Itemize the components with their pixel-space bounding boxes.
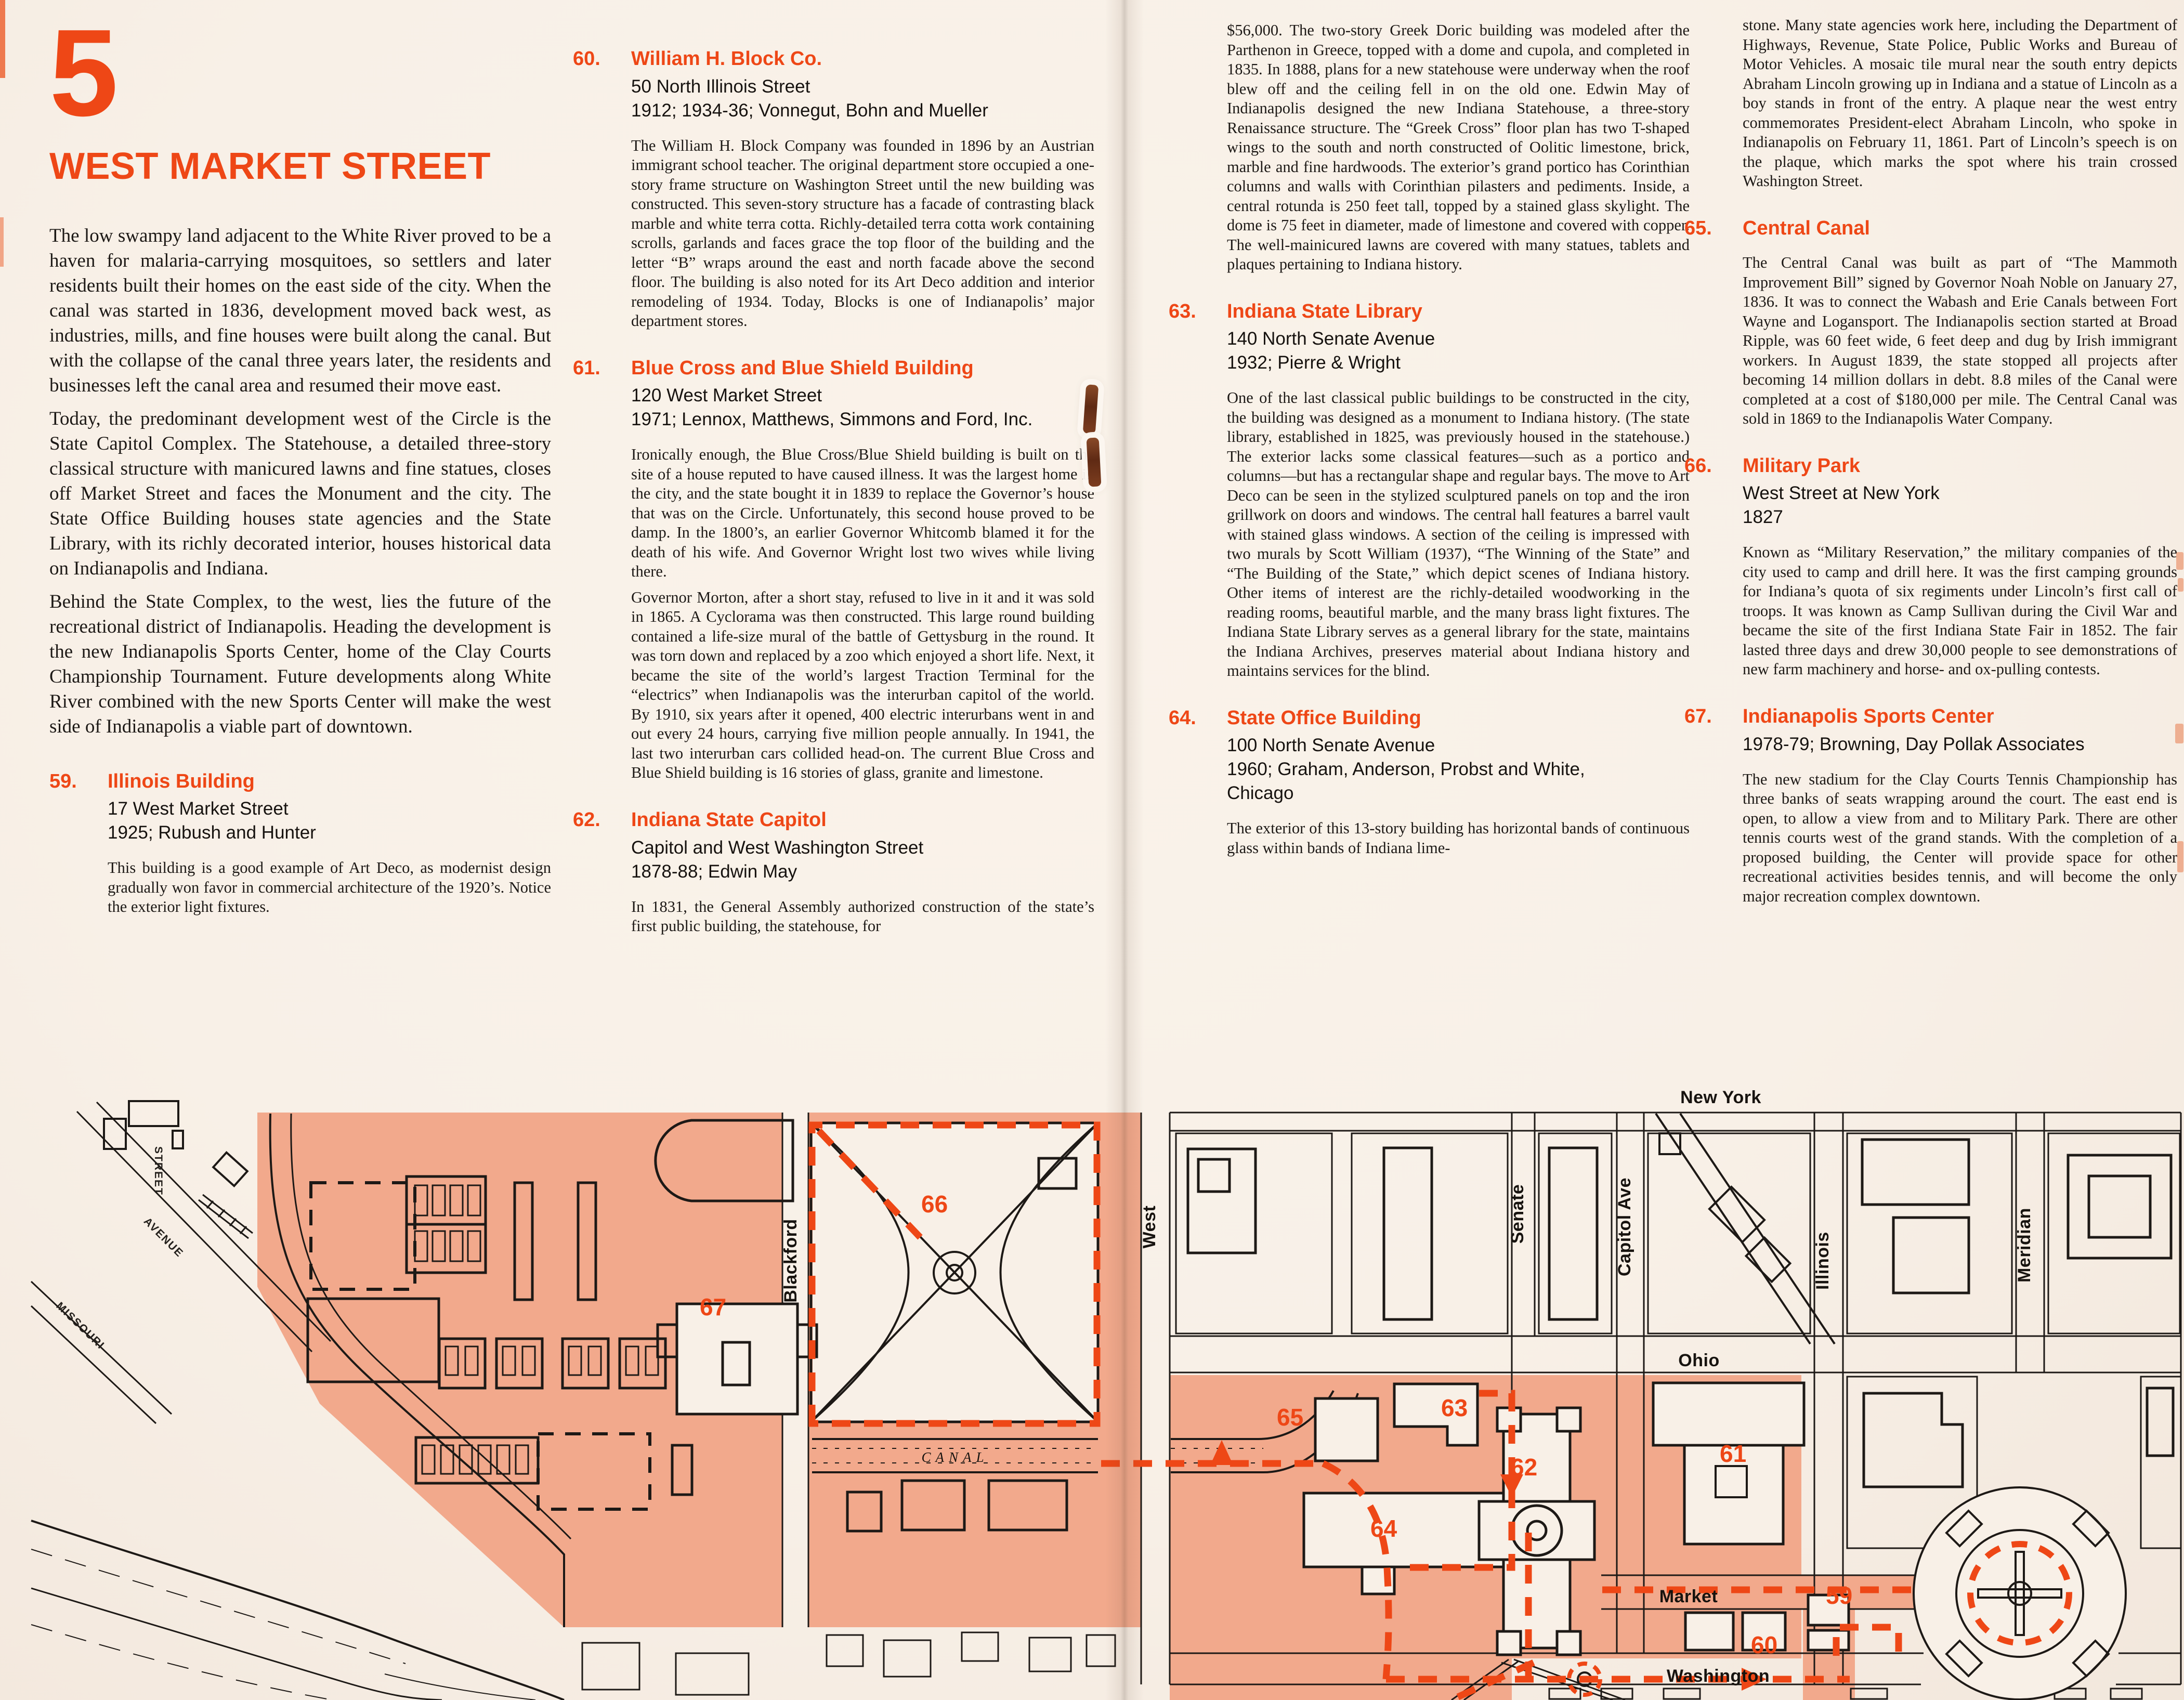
guidebook-page: 5 WEST MARKET STREET The low swampy land… <box>0 0 2184 1700</box>
entry-body: The William H. Block Company was founded… <box>631 136 1094 331</box>
entry-body: The Central Canal was built as part of “… <box>1743 253 2177 429</box>
address-line: 100 North Senate Avenue <box>1227 734 1690 757</box>
address-line: 1971; Lennox, Matthews, Simmons and Ford… <box>631 408 1094 431</box>
intro-paragraph-2: Today, the predominant development west … <box>49 407 551 581</box>
street-label-senate: Senate <box>1508 1184 1527 1244</box>
address-line: 1912; 1934-36; Vonnegut, Bohn and Muelle… <box>631 99 1094 123</box>
entry-number: 67. <box>1684 705 1743 906</box>
entry-64: 64.State Office Building100 North Senate… <box>1169 707 1690 858</box>
intro-paragraph-3: Behind the State Complex, to the west, l… <box>49 590 551 739</box>
entry-address: West Street at New York1827 <box>1743 481 2177 529</box>
entry-body: One of the last classical public buildin… <box>1227 388 1690 681</box>
entry-body: Ironically enough, the Blue Cross/Blue S… <box>631 445 1094 783</box>
street-label-new-york: New York <box>1680 1088 1761 1107</box>
entry-paragraph-1: This building is a good example of Art D… <box>108 858 551 917</box>
column-1: 5 WEST MARKET STREET The low swampy land… <box>49 0 551 917</box>
address-line: 1960; Graham, Anderson, Probst and White… <box>1227 757 1690 781</box>
entry-name: Indianapolis Sports Center <box>1743 705 2177 728</box>
entry-content: Central CanalThe Central Canal was built… <box>1743 217 2177 429</box>
address-line: 120 West Market Street <box>631 384 1094 408</box>
entry-62: 62.Indiana State CapitolCapitol and West… <box>573 809 1094 936</box>
entry-content: Indianapolis Sports Center1978-79; Brown… <box>1743 705 2177 906</box>
entry-61: 61.Blue Cross and Blue Shield Building12… <box>573 357 1094 783</box>
entry-name: Indiana State Library <box>1227 300 1690 323</box>
entry-content: Indiana State CapitolCapitol and West Wa… <box>631 809 1094 936</box>
entry-number: 64. <box>1169 707 1227 858</box>
entry-name: Blue Cross and Blue Shield Building <box>631 357 1094 380</box>
entry-name: William H. Block Co. <box>631 48 1094 71</box>
street-label-street: STREET <box>152 1146 164 1196</box>
entry-63: 63.Indiana State Library140 North Senate… <box>1169 300 1690 681</box>
entry-address: 1978-79; Browning, Day Pollak Associates <box>1743 733 2177 756</box>
entry-address: 50 North Illinois Street1912; 1934-36; V… <box>631 75 1094 123</box>
address-line: 140 North Senate Avenue <box>1227 327 1690 351</box>
column-3: $56,000. The two-story Greek Doric build… <box>1169 0 1690 858</box>
entry-address: 17 West Market Street1925; Rubush and Hu… <box>108 797 551 845</box>
entry-body: The exterior of this 13-story building h… <box>1227 819 1690 858</box>
entry-body: This building is a good example of Art D… <box>108 858 551 917</box>
address-line: Chicago <box>1227 781 1690 805</box>
staple-top <box>1083 384 1098 434</box>
address-line: 1932; Pierre & Wright <box>1227 351 1690 375</box>
monument-circle <box>1914 1487 2126 1699</box>
entry-body: Known as “Military Reservation,” the mil… <box>1743 543 2177 679</box>
address-line: 1978-79; Browning, Day Pollak Associates <box>1743 733 2177 756</box>
entry-number: 60. <box>573 48 631 331</box>
column-1-entries: 59.Illinois Building17 West Market Stree… <box>49 770 551 917</box>
map-number-63: 63 <box>1441 1394 1468 1421</box>
entry-content: William H. Block Co.50 North Illinois St… <box>631 48 1094 331</box>
entry-paragraph-1: The Central Canal was built as part of “… <box>1743 253 2177 429</box>
entry-number: 66. <box>1684 455 1743 679</box>
entry-address: 120 West Market Street1971; Lennox, Matt… <box>631 384 1094 431</box>
address-line: Capitol and West Washington Street <box>631 836 1094 860</box>
edge-smudge-4 <box>2177 841 2183 872</box>
map-number-59: 59 <box>1826 1582 1852 1609</box>
entry-number: 61. <box>573 357 631 783</box>
address-line: 1827 <box>1743 505 2177 529</box>
address-line: 1878-88; Edwin May <box>631 860 1094 884</box>
map-number-65: 65 <box>1277 1404 1303 1431</box>
map-number-62: 62 <box>1511 1454 1537 1481</box>
street-label-market: Market <box>1659 1587 1718 1606</box>
entry-body: In 1831, the General Assembly authorized… <box>631 897 1094 936</box>
street-label-ohio: Ohio <box>1678 1351 1719 1370</box>
entry-paragraph-1: The new stadium for the Clay Courts Tenn… <box>1743 770 2177 907</box>
address-line: 1925; Rubush and Hunter <box>108 821 551 845</box>
entry-67: 67.Indianapolis Sports Center1978-79; Br… <box>1684 705 2177 906</box>
entry-paragraph-1: The William H. Block Company was founded… <box>631 136 1094 331</box>
entry-number: 65. <box>1684 217 1743 429</box>
street-label-west: West <box>1140 1206 1159 1249</box>
column-4: stone. Many state agencies work here, in… <box>1684 0 2177 906</box>
street-label-washington: Washington <box>1667 1666 1770 1686</box>
district-map: Blackford West Senate Capitol Ave Illino… <box>0 1081 2184 1700</box>
entry-content: Indiana State Library140 North Senate Av… <box>1227 300 1690 681</box>
entry-number: 59. <box>49 770 108 917</box>
page-title: WEST MARKET STREET <box>49 148 551 185</box>
entry-name: Illinois Building <box>108 770 551 793</box>
street-label-meridian: Meridian <box>2015 1208 2034 1283</box>
entry-65: 65.Central CanalThe Central Canal was bu… <box>1684 217 2177 429</box>
column-2: 60.William H. Block Co.50 North Illinois… <box>573 0 1094 936</box>
entry-paragraph-2: Governor Morton, after a short stay, ref… <box>631 588 1094 783</box>
entry-address: Capitol and West Washington Street1878-8… <box>631 836 1094 884</box>
section-number: 5 <box>49 25 551 122</box>
entry-paragraph-1: The exterior of this 13-story building h… <box>1227 819 1690 858</box>
entry-paragraph-1: One of the last classical public buildin… <box>1227 388 1690 681</box>
address-line: West Street at New York <box>1743 481 2177 505</box>
address-line: 17 West Market Street <box>108 797 551 821</box>
street-label-missouri: MISSOURI <box>54 1300 107 1352</box>
entry-content: Illinois Building17 West Market Street19… <box>108 770 551 917</box>
entry-address: 100 North Senate Avenue1960; Graham, And… <box>1227 734 1690 805</box>
street-label-blackford: Blackford <box>781 1219 801 1302</box>
edge-smudge-1 <box>2176 552 2183 570</box>
continuation-capitol_col3: $56,000. The two-story Greek Doric build… <box>1227 21 1690 274</box>
entry-number: 63. <box>1169 300 1227 681</box>
entry-paragraph-1: In 1831, the General Assembly authorized… <box>631 897 1094 936</box>
intro-paragraph-1: The low swampy land adjacent to the Whit… <box>49 224 551 398</box>
edge-smudge-3 <box>2175 724 2183 743</box>
continuation-state_office_col4: stone. Many state agencies work here, in… <box>1743 16 2177 191</box>
address-line: 50 North Illinois Street <box>631 75 1094 99</box>
map-number-66: 66 <box>921 1191 948 1218</box>
entry-content: State Office Building100 North Senate Av… <box>1227 707 1690 858</box>
intro-paragraphs: The low swampy land adjacent to the Whit… <box>49 224 551 739</box>
entry-59: 59.Illinois Building17 West Market Stree… <box>49 770 551 917</box>
canal-label: CANAL <box>921 1449 988 1465</box>
page-edge-bleed-mid <box>0 217 4 267</box>
entry-name: State Office Building <box>1227 707 1690 730</box>
entry-66: 66.Military ParkWest Street at New York1… <box>1684 455 2177 679</box>
entry-60: 60.William H. Block Co.50 North Illinois… <box>573 48 1094 331</box>
edge-smudge-2 <box>2178 578 2183 592</box>
page-edge-bleed-top <box>0 0 5 78</box>
entry-address: 140 North Senate Avenue1932; Pierre & Wr… <box>1227 327 1690 375</box>
entry-body: The new stadium for the Clay Courts Tenn… <box>1743 770 2177 907</box>
street-label-avenue: AVENUE <box>141 1215 186 1260</box>
map-number-64: 64 <box>1370 1515 1397 1542</box>
street-label-illinois: Illinois <box>1813 1232 1833 1290</box>
street-label-capitol-ave: Capitol Ave <box>1615 1178 1634 1276</box>
map-number-61: 61 <box>1720 1440 1746 1467</box>
map-number-67: 67 <box>700 1293 726 1320</box>
entry-content: Military ParkWest Street at New York1827… <box>1743 455 2177 679</box>
entry-paragraph-1: Ironically enough, the Blue Cross/Blue S… <box>631 445 1094 582</box>
entry-name: Military Park <box>1743 455 2177 478</box>
entry-name: Central Canal <box>1743 217 2177 240</box>
staple-bottom <box>1087 437 1102 487</box>
entry-name: Indiana State Capitol <box>631 809 1094 832</box>
map-number-60: 60 <box>1751 1631 1777 1658</box>
entry-paragraph-1: Known as “Military Reservation,” the mil… <box>1743 543 2177 679</box>
entry-content: Blue Cross and Blue Shield Building120 W… <box>631 357 1094 783</box>
entry-number: 62. <box>573 809 631 936</box>
